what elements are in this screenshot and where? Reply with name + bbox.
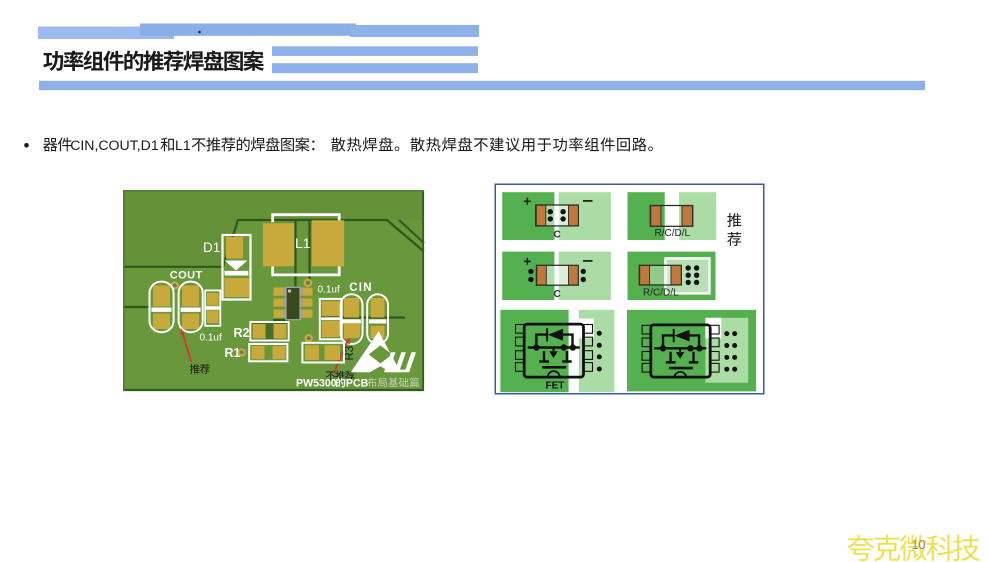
svg-text:L1: L1 <box>295 235 311 251</box>
svg-text:R/C/D/L: R/C/D/L <box>655 228 691 239</box>
svg-text:COUT: COUT <box>170 269 203 281</box>
svg-text:R2: R2 <box>234 326 250 340</box>
svg-text:0.1uf: 0.1uf <box>200 333 222 344</box>
svg-text:10: 10 <box>912 538 926 552</box>
svg-text:C: C <box>554 230 561 241</box>
svg-text:R/C/D/L: R/C/D/L <box>643 288 679 299</box>
svg-text:CIN,COUT,D1: CIN,COUT,D1 <box>70 137 159 153</box>
svg-text:R3: R3 <box>344 346 356 361</box>
svg-text:0.1uf: 0.1uf <box>318 285 340 296</box>
svg-text:D1: D1 <box>203 240 220 255</box>
svg-text:L1: L1 <box>175 137 191 153</box>
svg-text:C: C <box>554 289 561 300</box>
svg-text:PW5300: PW5300 <box>296 378 337 390</box>
svg-text:CIN: CIN <box>349 282 372 294</box>
svg-text:FET: FET <box>546 381 565 392</box>
svg-text:PCB: PCB <box>346 378 369 390</box>
